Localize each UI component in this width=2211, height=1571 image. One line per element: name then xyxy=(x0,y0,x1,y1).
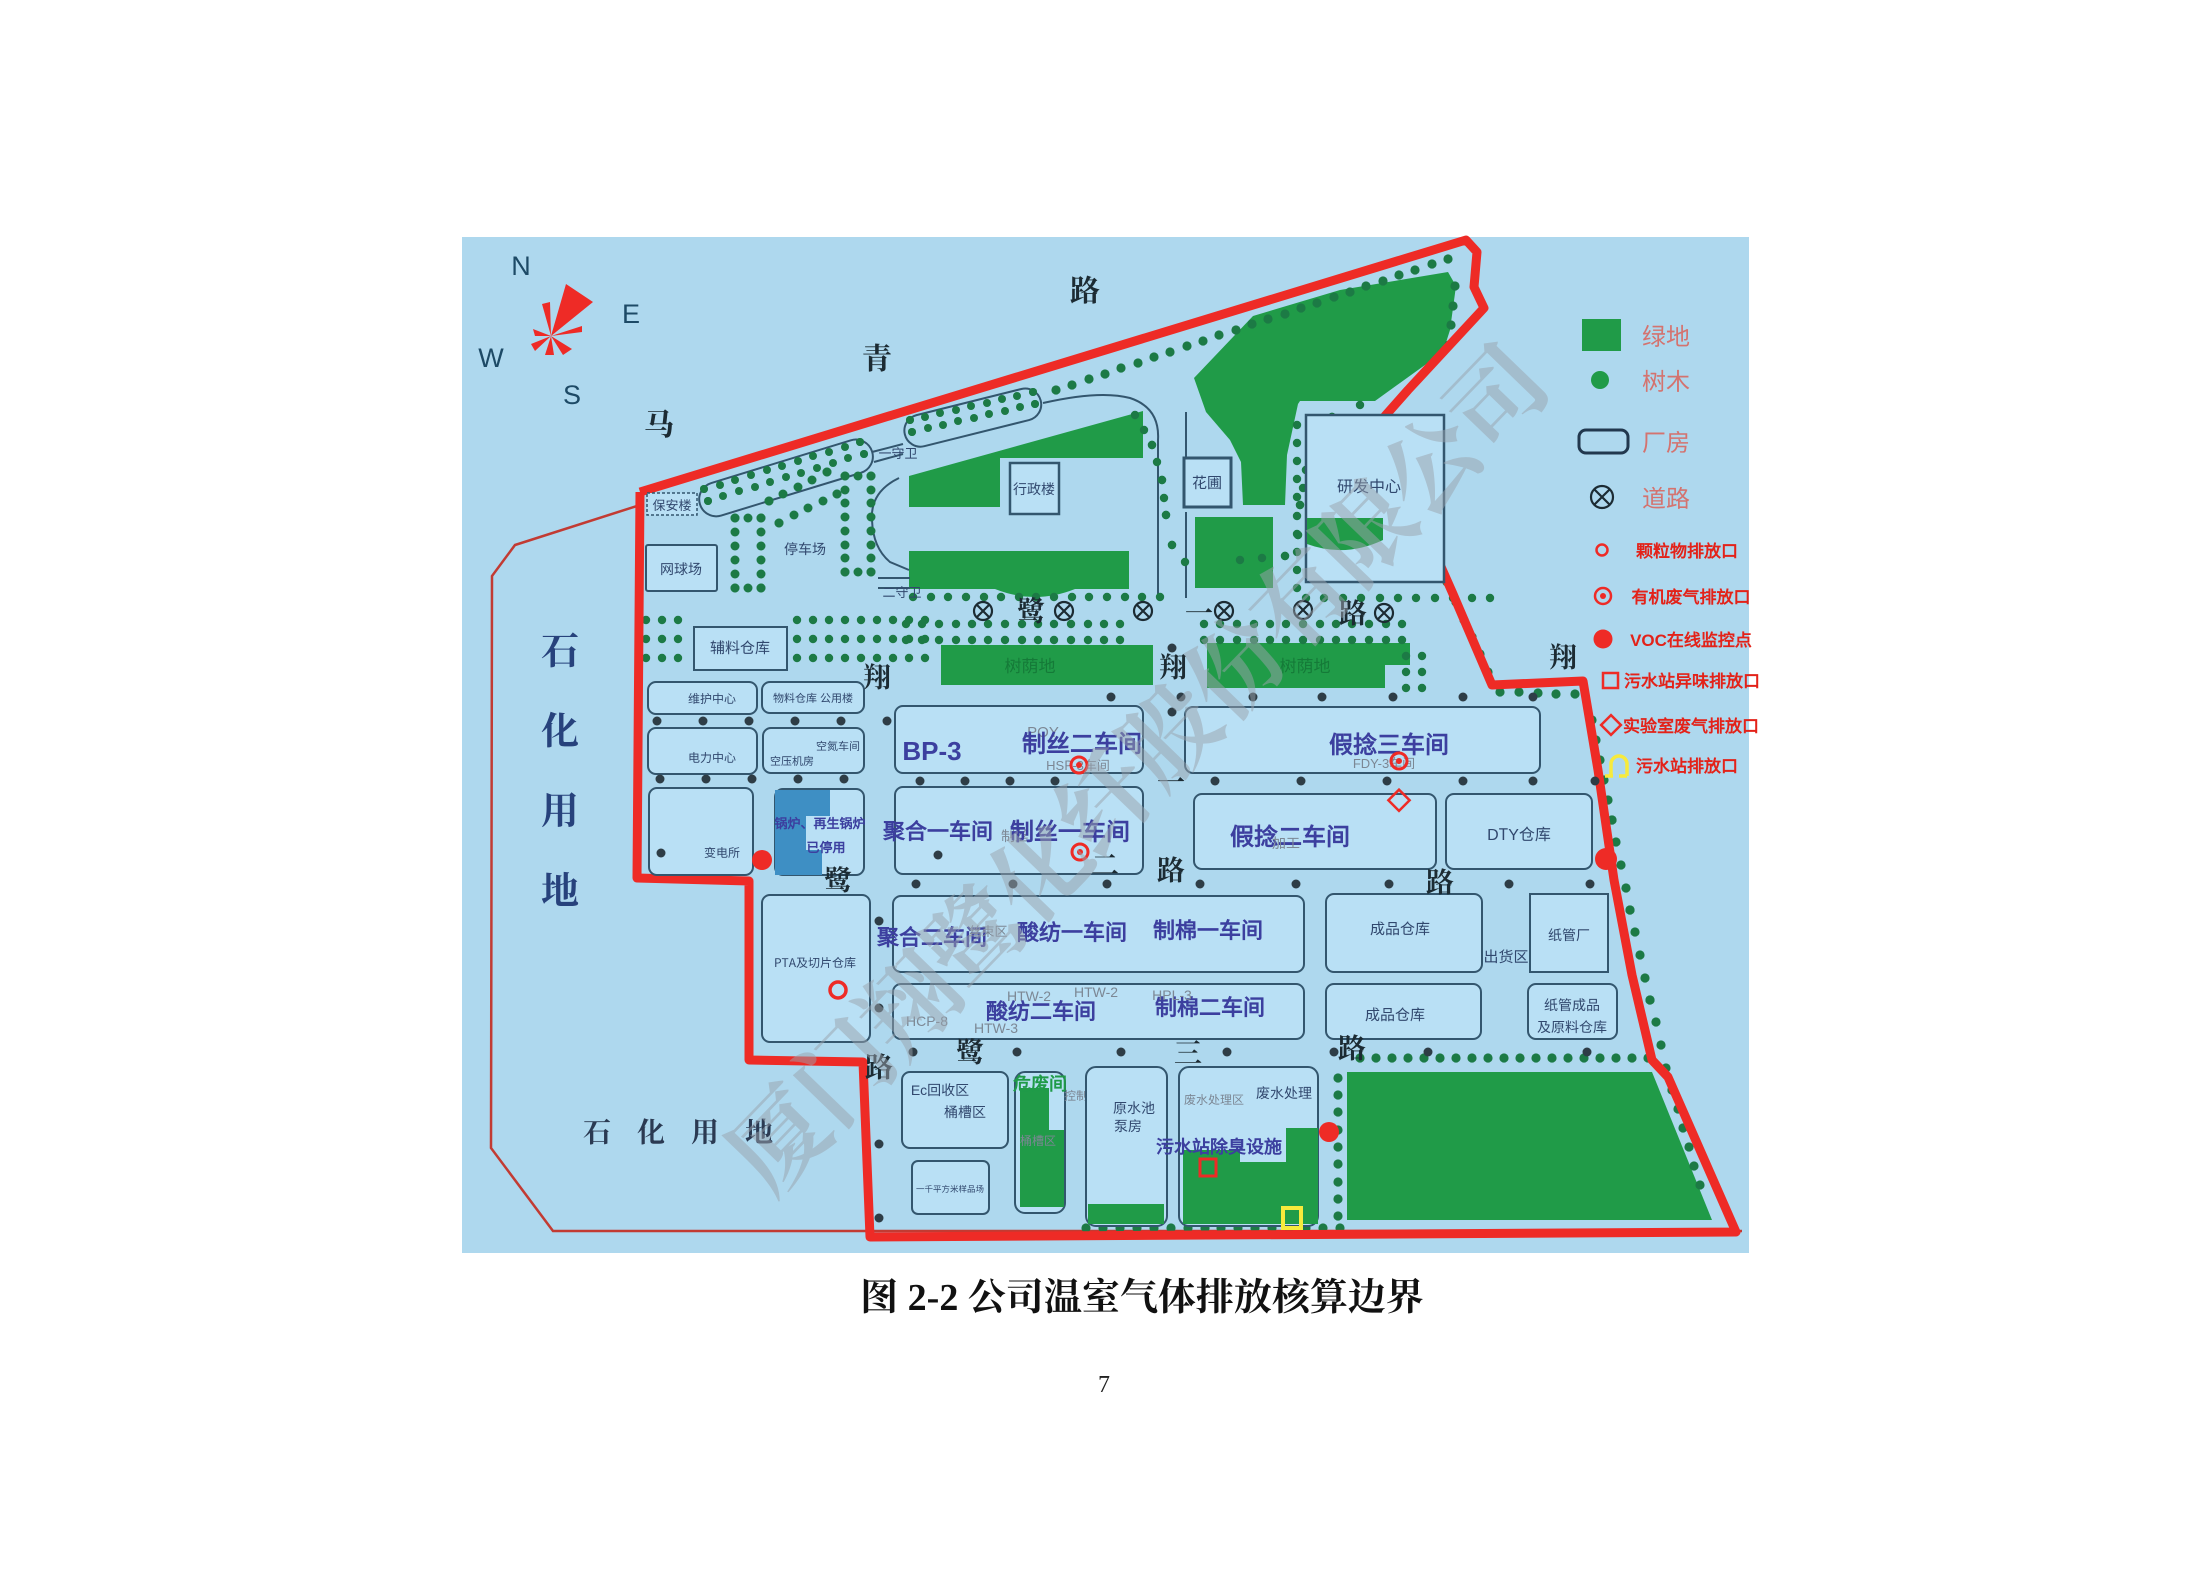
svg-text:青: 青 xyxy=(862,334,892,378)
svg-text:用: 用 xyxy=(541,780,579,835)
svg-text:桶槽区: 桶槽区 xyxy=(944,1102,986,1122)
svg-text:路: 路 xyxy=(1338,1027,1366,1067)
svg-text:翔: 翔 xyxy=(863,656,891,696)
svg-text:HPL-3: HPL-3 xyxy=(1152,987,1192,1003)
svg-text:纸管厂: 纸管厂 xyxy=(1548,925,1590,945)
svg-text:废水处理: 废水处理 xyxy=(1256,1083,1312,1103)
svg-text:污水站除臭设施: 污水站除臭设施 xyxy=(1156,1133,1282,1159)
svg-text:电力中心: 电力中心 xyxy=(688,749,736,766)
svg-text:成品仓库: 成品仓库 xyxy=(1365,1004,1425,1025)
svg-text:树荫地: 树荫地 xyxy=(1005,652,1056,677)
svg-text:加工: 加工 xyxy=(1272,833,1300,853)
svg-text:酸纺二车间: 酸纺二车间 xyxy=(986,994,1096,1026)
svg-text:E: E xyxy=(622,299,640,329)
svg-text:马: 马 xyxy=(644,400,674,444)
svg-text:出货区: 出货区 xyxy=(1483,946,1528,967)
svg-text:网球场: 网球场 xyxy=(660,559,702,579)
svg-text:制棉一车间: 制棉一车间 xyxy=(1153,913,1263,945)
svg-text:有机废气排放口: 有机废气排放口 xyxy=(1632,583,1751,608)
svg-text:绿地: 绿地 xyxy=(1642,317,1690,352)
svg-text:路: 路 xyxy=(1070,266,1100,310)
svg-text:行政楼: 行政楼 xyxy=(1013,479,1055,499)
svg-text:变电所: 变电所 xyxy=(704,844,740,861)
svg-text:物料仓库 公用楼: 物料仓库 公用楼 xyxy=(773,690,853,706)
svg-text:危废间: 危废间 xyxy=(1012,1070,1067,1096)
svg-text:空压机房: 空压机房 xyxy=(770,753,814,769)
svg-text:路: 路 xyxy=(1157,849,1185,889)
svg-text:树木: 树木 xyxy=(1642,362,1690,397)
svg-text:及原料仓库: 及原料仓库 xyxy=(1537,1017,1607,1037)
svg-text:一千平方米样品场: 一千平方米样品场 xyxy=(916,1183,984,1195)
svg-text:废水处理区: 废水处理区 xyxy=(1184,1091,1244,1108)
svg-text:DTY仓库: DTY仓库 xyxy=(1487,821,1551,845)
svg-text:化: 化 xyxy=(541,700,579,755)
svg-text:一守卫: 一守卫 xyxy=(878,443,917,462)
svg-text:W: W xyxy=(478,343,504,373)
svg-text:已停用: 已停用 xyxy=(806,837,845,856)
svg-text:BP-3: BP-3 xyxy=(902,736,961,766)
svg-text:翔: 翔 xyxy=(1549,636,1577,676)
svg-text:维护中心: 维护中心 xyxy=(688,690,736,707)
svg-text:污水站排放口: 污水站排放口 xyxy=(1636,752,1738,777)
svg-text:鹭: 鹭 xyxy=(824,859,852,899)
svg-text:颗粒物排放口: 颗粒物排放口 xyxy=(1636,537,1738,562)
svg-text:石: 石 xyxy=(541,620,579,675)
svg-text:污水站异味排放口: 污水站异味排放口 xyxy=(1624,667,1760,692)
svg-text:路: 路 xyxy=(1426,861,1454,901)
svg-text:原水池: 原水池 xyxy=(1113,1098,1155,1118)
svg-text:空氮车间: 空氮车间 xyxy=(816,738,860,754)
svg-text:图 2-2 公司温室气体排放核算边界: 图 2-2 公司温室气体排放核算边界 xyxy=(860,1266,1424,1321)
svg-text:道路: 道路 xyxy=(1642,479,1690,514)
svg-text:三: 三 xyxy=(1174,1032,1202,1072)
svg-text:鹭: 鹭 xyxy=(1017,590,1045,630)
svg-text:VOC在线监控点: VOC在线监控点 xyxy=(1630,626,1752,651)
svg-text:7: 7 xyxy=(1098,1372,1110,1398)
svg-text:N: N xyxy=(511,251,531,281)
svg-text:泵房: 泵房 xyxy=(1114,1116,1142,1136)
svg-text:成品仓库: 成品仓库 xyxy=(1370,918,1430,939)
svg-text:花圃: 花圃 xyxy=(1192,472,1222,493)
svg-text:保安楼: 保安楼 xyxy=(652,495,691,514)
svg-text:S: S xyxy=(563,380,581,410)
svg-text:地: 地 xyxy=(541,860,579,915)
svg-text:辅料仓库: 辅料仓库 xyxy=(710,637,770,658)
svg-text:锅炉、再生锅炉: 锅炉、再生锅炉 xyxy=(774,813,865,832)
svg-text:厂房: 厂房 xyxy=(1642,423,1690,458)
svg-text:桶槽区: 桶槽区 xyxy=(1020,1132,1056,1149)
svg-text:实验室废气排放口: 实验室废气排放口 xyxy=(1623,712,1759,737)
svg-text:二守卫: 二守卫 xyxy=(882,582,921,601)
svg-text:停车场: 停车场 xyxy=(784,539,826,559)
svg-text:纸管成品: 纸管成品 xyxy=(1544,995,1600,1015)
svg-text:化: 化 xyxy=(637,1111,665,1151)
svg-text:石: 石 xyxy=(583,1111,611,1151)
